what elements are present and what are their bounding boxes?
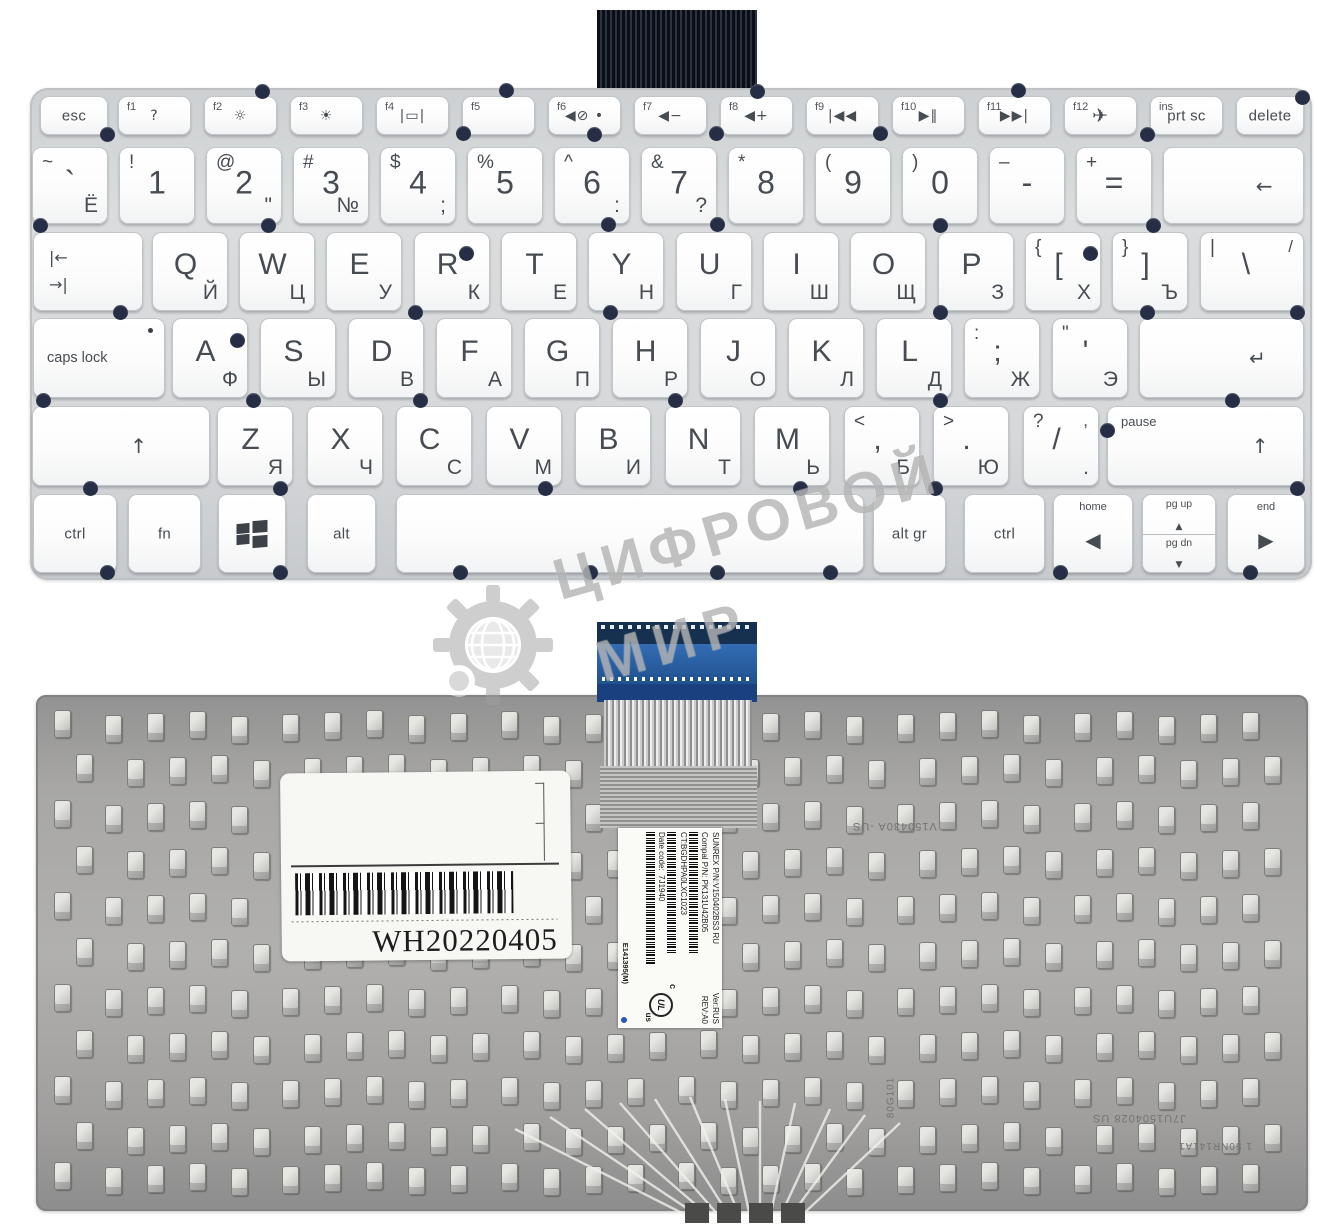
key-9: (9 — [815, 147, 891, 224]
ribbon-conductors — [600, 766, 757, 828]
sticker-barcode — [295, 871, 513, 915]
key-main-label: H — [635, 335, 657, 369]
label-barcode — [668, 832, 677, 954]
key-cyrillic-label: Ы — [307, 368, 326, 392]
key-main-label: T — [525, 248, 543, 282]
mounting-clip — [1200, 1166, 1217, 1194]
mounting-clip — [388, 1030, 405, 1058]
ul-c-mark: c — [668, 984, 678, 989]
mounting-clip — [543, 716, 560, 744]
screw-dot — [83, 481, 98, 496]
screw-dot — [33, 218, 48, 233]
mounting-clip — [1138, 847, 1155, 875]
mounting-clip — [939, 712, 956, 740]
mounting-clip — [1222, 942, 1239, 970]
screw-dot — [1146, 218, 1161, 233]
key-cyrillic-label: Б — [896, 456, 910, 480]
mounting-clip — [1138, 939, 1155, 967]
key-main-label: A — [196, 335, 216, 369]
screw-dot — [261, 218, 276, 233]
screw-dot — [246, 393, 261, 408]
mounting-clip — [282, 714, 299, 742]
flex-circuit-traces — [455, 1085, 925, 1225]
key-equals: += — [1076, 147, 1152, 224]
mounting-clip — [1222, 758, 1239, 786]
key-8: *8 — [728, 147, 804, 224]
mounting-clip — [897, 896, 914, 924]
key-cyrillic-label: Ш — [810, 281, 829, 305]
screw-dot — [793, 481, 808, 496]
screw-dot — [1053, 565, 1068, 580]
mounting-clip — [720, 989, 737, 1017]
mounting-clip — [762, 713, 779, 741]
mounting-clip — [501, 985, 518, 1013]
mounting-clip — [826, 1031, 843, 1059]
mounting-clip — [76, 1030, 93, 1058]
key-alt-symbol: / — [1288, 237, 1293, 257]
mounting-clip — [324, 986, 341, 1014]
key-cyrillic-label: ? — [695, 194, 707, 218]
mounting-clip — [54, 800, 71, 828]
mounting-clip — [54, 1162, 71, 1190]
key-cyrillic-label: Д — [928, 368, 942, 392]
key-main-label: C — [419, 423, 441, 457]
mounting-clip — [105, 805, 122, 833]
key-o: OЩ — [850, 232, 926, 311]
label-barcode — [689, 832, 698, 954]
key-altgr: alt gr — [873, 494, 946, 573]
screw-dot — [36, 393, 51, 408]
screw-dot — [1140, 305, 1155, 320]
key-main-label: F — [460, 335, 478, 369]
key-main-label: ] — [1141, 248, 1149, 282]
mounting-clip — [346, 1124, 363, 1152]
mounting-clip — [54, 984, 71, 1012]
key-shift-symbol: ! — [129, 152, 134, 174]
key-secondary-label: home — [1079, 501, 1107, 513]
key-f: FА — [436, 318, 512, 398]
screw-dot — [1225, 393, 1240, 408]
key-cyrillic-label: Н — [639, 281, 654, 305]
mounting-clip — [981, 1162, 998, 1190]
screw-dot — [710, 217, 725, 232]
mounting-clip — [1200, 1080, 1217, 1108]
key-fn-label: f1 — [127, 101, 136, 113]
mounting-clip — [981, 892, 998, 920]
key-x: XЧ — [307, 406, 383, 486]
mounting-clip — [127, 1127, 144, 1155]
mounting-clip — [169, 849, 186, 877]
key-cyrillic-label: Э — [1103, 368, 1118, 392]
key-main-label: 5 — [496, 165, 514, 202]
mounting-clip — [1074, 713, 1091, 741]
shift-icon: ↑ — [1252, 434, 1269, 458]
screw-dot — [100, 565, 115, 580]
mounting-clip — [408, 1081, 425, 1109]
mounting-clip — [231, 1082, 248, 1110]
key-f1: f1? — [118, 96, 191, 135]
key-shift-symbol: ) — [912, 152, 918, 174]
key-f11: f11▶▶| — [978, 96, 1051, 135]
ul-us-mark: us — [644, 1013, 653, 1022]
key-semicolon: :;Ж — [964, 318, 1040, 398]
screw-dot — [538, 481, 553, 496]
mounting-clip — [169, 1125, 186, 1153]
prev-track-icon: |◀◀ — [828, 108, 857, 124]
mounting-clip — [366, 984, 383, 1012]
key-cyrillic-label: Ч — [359, 456, 373, 480]
mounting-clip — [1074, 803, 1091, 831]
shift-icon: ↑ — [130, 434, 147, 458]
key-tab: |← →| — [33, 232, 143, 311]
mounting-clip — [649, 1032, 666, 1060]
key-z: ZЯ — [217, 406, 293, 486]
key-i: IШ — [763, 232, 839, 311]
key-main-label: caps lock — [47, 350, 107, 366]
volume-up-icon: ◀+ — [744, 108, 769, 124]
key-shift-symbol: @ — [216, 152, 235, 174]
volume-down-icon: ◀− — [658, 108, 683, 124]
mounting-clip — [231, 1168, 248, 1196]
mounting-clip — [784, 941, 801, 969]
airplane-icon: ✈ — [1092, 105, 1109, 127]
mounting-clip — [231, 716, 248, 744]
mounting-clip — [804, 893, 821, 921]
mounting-clip — [1023, 1081, 1040, 1109]
key-main-label: alt gr — [892, 525, 927, 542]
mounting-clip — [450, 713, 467, 741]
key-shift-symbol: | — [1210, 237, 1215, 259]
mounting-clip — [54, 1076, 71, 1104]
key-c: CС — [396, 406, 472, 486]
mounting-clip — [826, 755, 843, 783]
mounting-clip — [1003, 1030, 1020, 1058]
ul-file-number: E141395(M) — [621, 943, 630, 984]
mounting-clip — [700, 1030, 717, 1058]
ct-number: CT:BGDHPA0LXC1023 — [678, 832, 689, 915]
key-fn-label: f7 — [643, 101, 652, 113]
key-cyrillic-label: ; — [440, 194, 446, 218]
key-backslash: |/\ — [1200, 232, 1304, 311]
mounting-clip — [1200, 714, 1217, 742]
mounting-clip — [231, 898, 248, 926]
key-cyrillic-label: Г — [731, 281, 742, 305]
mounting-clip — [1003, 938, 1020, 966]
key-k: KЛ — [788, 318, 864, 398]
key-6: ^6: — [554, 147, 630, 224]
mounting-clip — [1158, 1082, 1175, 1110]
mounting-clip — [897, 714, 914, 742]
key-arrow-right: end▶ — [1227, 494, 1305, 573]
key-main-label: Q — [174, 248, 197, 282]
mounting-clip — [501, 711, 518, 739]
mounting-clip — [543, 990, 560, 1018]
key-f10: f10▶∥ — [892, 96, 965, 135]
mounting-clip — [1023, 897, 1040, 925]
key-y: YН — [588, 232, 664, 311]
key-main-label: esc — [62, 107, 86, 124]
screw-dot — [601, 217, 616, 232]
watermark-gear-icon — [428, 580, 558, 710]
key-j: JО — [700, 318, 776, 398]
key-shift-symbol: > — [943, 411, 954, 433]
mounting-clip — [105, 1167, 122, 1195]
mounting-clip — [105, 715, 122, 743]
key-slash: ?,/. — [1023, 406, 1099, 486]
key-u: UГ — [676, 232, 752, 311]
blue-dot — [621, 1017, 627, 1023]
mounting-clip — [253, 852, 270, 880]
key-period: >.Ю — [933, 406, 1009, 486]
mounting-clip — [1200, 988, 1217, 1016]
mounting-clip — [1074, 1165, 1091, 1193]
mounting-clip — [961, 940, 978, 968]
key-cyrillic-label: И — [626, 456, 641, 480]
key-fn-label: f10 — [901, 101, 916, 113]
mounting-clip — [169, 1033, 186, 1061]
mounting-clip — [1116, 893, 1133, 921]
left-icon: ◀ — [1085, 528, 1100, 552]
key-3: #3№ — [293, 147, 369, 224]
screw-dot — [750, 84, 765, 99]
mounting-clip — [169, 757, 186, 785]
mounting-clip — [1158, 898, 1175, 926]
mounting-clip — [1138, 1123, 1155, 1151]
mounting-clip — [253, 944, 270, 972]
key-shift-symbol: # — [303, 152, 314, 174]
key-main-label: 4 — [409, 165, 427, 202]
key-quote: "'Э — [1052, 318, 1128, 398]
mounting-clip — [54, 710, 71, 738]
key-f3: f3☀ — [290, 96, 363, 135]
key-cyrillic-label: М — [535, 456, 553, 480]
plate-mark: V150430A -US — [852, 820, 937, 832]
key-main-label: alt — [333, 525, 350, 542]
mounting-clip — [147, 987, 164, 1015]
mounting-clip — [1045, 851, 1062, 879]
key-secondary-label: pause — [1121, 414, 1156, 429]
caps-indicator-dot — [148, 328, 153, 333]
screw-dot — [933, 218, 948, 233]
screw-dot — [603, 305, 618, 320]
mounting-clip — [189, 893, 206, 921]
mounting-clip — [253, 1128, 270, 1156]
key-b: BИ — [575, 406, 651, 486]
mounting-clip — [189, 711, 206, 739]
mounting-clip — [1045, 943, 1062, 971]
key-secondary-label: pg up — [1166, 498, 1192, 510]
key-cyrillic-label: : — [614, 194, 620, 218]
mounting-clip — [1242, 1078, 1259, 1106]
mounting-clip — [1242, 712, 1259, 740]
mounting-clip — [304, 1034, 321, 1062]
key-main-label: W — [258, 248, 286, 282]
mounting-clip — [919, 758, 936, 786]
key-win — [218, 494, 286, 573]
mounting-clip — [189, 1077, 206, 1105]
mounting-clip — [868, 760, 885, 788]
key-main-label: G — [546, 335, 569, 369]
screw-dot — [823, 565, 838, 580]
mounting-clip — [1264, 1124, 1281, 1152]
key-main-label: = — [1105, 165, 1124, 202]
key-shift-symbol: ^ — [564, 152, 573, 174]
key-main-label: U — [699, 248, 721, 282]
key-cyrillic-label: О — [750, 368, 766, 392]
key-cyrillic-label: " — [265, 194, 272, 218]
key-main-label: delete — [1249, 107, 1292, 124]
ribbon-pins — [604, 700, 752, 768]
key-cyrillic-label: У — [379, 281, 392, 305]
mounting-clip — [472, 1033, 489, 1061]
screw-dot — [873, 126, 888, 141]
key-main-label: \ — [1242, 248, 1250, 282]
key-cyrillic-label: Ъ — [1161, 281, 1178, 305]
mounting-clip — [1222, 1034, 1239, 1062]
key-cyrillic-label: Т — [718, 456, 731, 480]
key-shift-right: pause↑ — [1107, 406, 1304, 486]
mounting-clip — [1003, 846, 1020, 874]
key-fn-label: f8 — [729, 101, 738, 113]
mounting-clip — [585, 988, 602, 1016]
key-bracket-left: {[Х — [1025, 232, 1101, 311]
up-icon: ▲ — [1176, 522, 1183, 532]
screw-dot — [255, 84, 270, 99]
mounting-clip — [981, 984, 998, 1012]
mounting-clip — [105, 1081, 122, 1109]
mounting-clip — [1096, 757, 1113, 785]
key-main-label: V — [510, 423, 530, 457]
mounting-clip — [961, 1124, 978, 1152]
screw-dot — [1290, 481, 1305, 496]
mounting-clip — [1158, 1168, 1175, 1196]
key-shift-symbol: * — [738, 152, 745, 174]
mounting-clip — [868, 944, 885, 972]
key-h: HР — [612, 318, 688, 398]
key-main-label: B — [599, 423, 619, 457]
key-shift-symbol: $ — [390, 152, 401, 174]
mounting-clip — [1096, 849, 1113, 877]
key-shift-symbol: + — [1086, 152, 1097, 174]
mounting-clip — [189, 1163, 206, 1191]
mounting-clip — [147, 895, 164, 923]
screw-dot — [1011, 83, 1026, 98]
key-f6: f6◀⊘ • — [548, 96, 621, 135]
mounting-clip — [231, 806, 248, 834]
mounting-clip — [1074, 987, 1091, 1015]
key-t: TЕ — [501, 232, 577, 311]
mounting-clip — [76, 1122, 93, 1150]
mounting-clip — [1096, 1125, 1113, 1153]
key-f8: f8◀+ — [720, 96, 793, 135]
mounting-clip — [189, 985, 206, 1013]
mounting-clip — [127, 759, 144, 787]
key-main-label: ' — [1083, 335, 1089, 369]
mounting-clip — [762, 895, 779, 923]
key-main-label: M — [775, 423, 800, 457]
key-main-label: , — [873, 423, 881, 457]
key-cyrillic-label: Л — [840, 368, 854, 392]
windows-logo-icon — [237, 520, 268, 547]
question-icon: ? — [150, 108, 158, 124]
key-comma: <,Б — [844, 406, 920, 486]
key-0: )0 — [902, 147, 978, 224]
mounting-clip — [1200, 896, 1217, 924]
mounting-clip — [147, 803, 164, 831]
key-grave: ~`Ё — [32, 147, 108, 224]
mounting-clip — [127, 851, 144, 879]
key-shift-symbol: ( — [825, 152, 831, 174]
key-7: &7? — [641, 147, 717, 224]
revision: REV:A0 — [699, 996, 710, 1024]
key-cyrillic-label: Ю — [978, 456, 999, 480]
mounting-clip — [1264, 756, 1281, 784]
key-main-label: [ — [1054, 248, 1062, 282]
mounting-clip — [981, 710, 998, 738]
mounting-clip — [784, 757, 801, 785]
key-main-label: S — [284, 335, 304, 369]
key-cyrillic-label: Й — [203, 281, 218, 305]
key-shift-symbol: " — [1062, 323, 1069, 345]
key-main-label: - — [1022, 165, 1033, 202]
compal-pn: Compal P/N: PK131U42B05 — [699, 832, 710, 933]
screw-dot — [273, 565, 288, 580]
sticker-rule — [291, 863, 559, 868]
mounting-clip — [1045, 1127, 1062, 1155]
key-esc: esc — [40, 96, 108, 135]
key-cyrillic-label: В — [400, 368, 414, 392]
key-p: PЗ — [938, 232, 1014, 311]
mounting-clip — [1138, 1031, 1155, 1059]
key-fn-label: f9 — [815, 101, 824, 113]
mounting-clip — [1074, 1079, 1091, 1107]
mounting-clip — [430, 1035, 447, 1063]
key-page-keys: pg up▲pg dn▼ — [1142, 494, 1216, 573]
key-d: DВ — [348, 318, 424, 398]
mounting-clip — [1180, 852, 1197, 880]
mounting-clip — [324, 1164, 341, 1192]
key-main-label: Y — [612, 248, 632, 282]
key-space — [396, 494, 864, 573]
mounting-clip — [1264, 848, 1281, 876]
key-fn-label: f5 — [471, 101, 480, 113]
mounting-clip — [366, 710, 383, 738]
key-alt: alt — [307, 494, 376, 573]
mounting-clip — [720, 897, 737, 925]
screw-dot — [1083, 246, 1098, 261]
mounting-clip — [1116, 711, 1133, 739]
key-main-label: prt sc — [1167, 107, 1205, 124]
key-main-label: . — [962, 423, 970, 457]
right-icon: ▶ — [1258, 528, 1273, 552]
screw-dot — [583, 565, 598, 580]
key-shift-symbol: – — [999, 152, 1010, 174]
key-main-label: P — [962, 248, 982, 282]
key-main-label: 6 — [583, 165, 601, 202]
mounting-clip — [408, 715, 425, 743]
mounting-clip — [1116, 1077, 1133, 1105]
screw-dot — [928, 481, 943, 496]
mounting-clip — [324, 712, 341, 740]
key-main-label: / — [1052, 423, 1060, 457]
enter-icon: ↵ — [1249, 346, 1266, 370]
mounting-clip — [211, 939, 228, 967]
key-main-label: 1 — [148, 165, 166, 202]
mounting-clip — [1264, 940, 1281, 968]
screw-dot — [933, 305, 948, 320]
display-icon: |▭| — [400, 108, 426, 124]
mute-icon: ◀⊘ • — [565, 108, 604, 124]
